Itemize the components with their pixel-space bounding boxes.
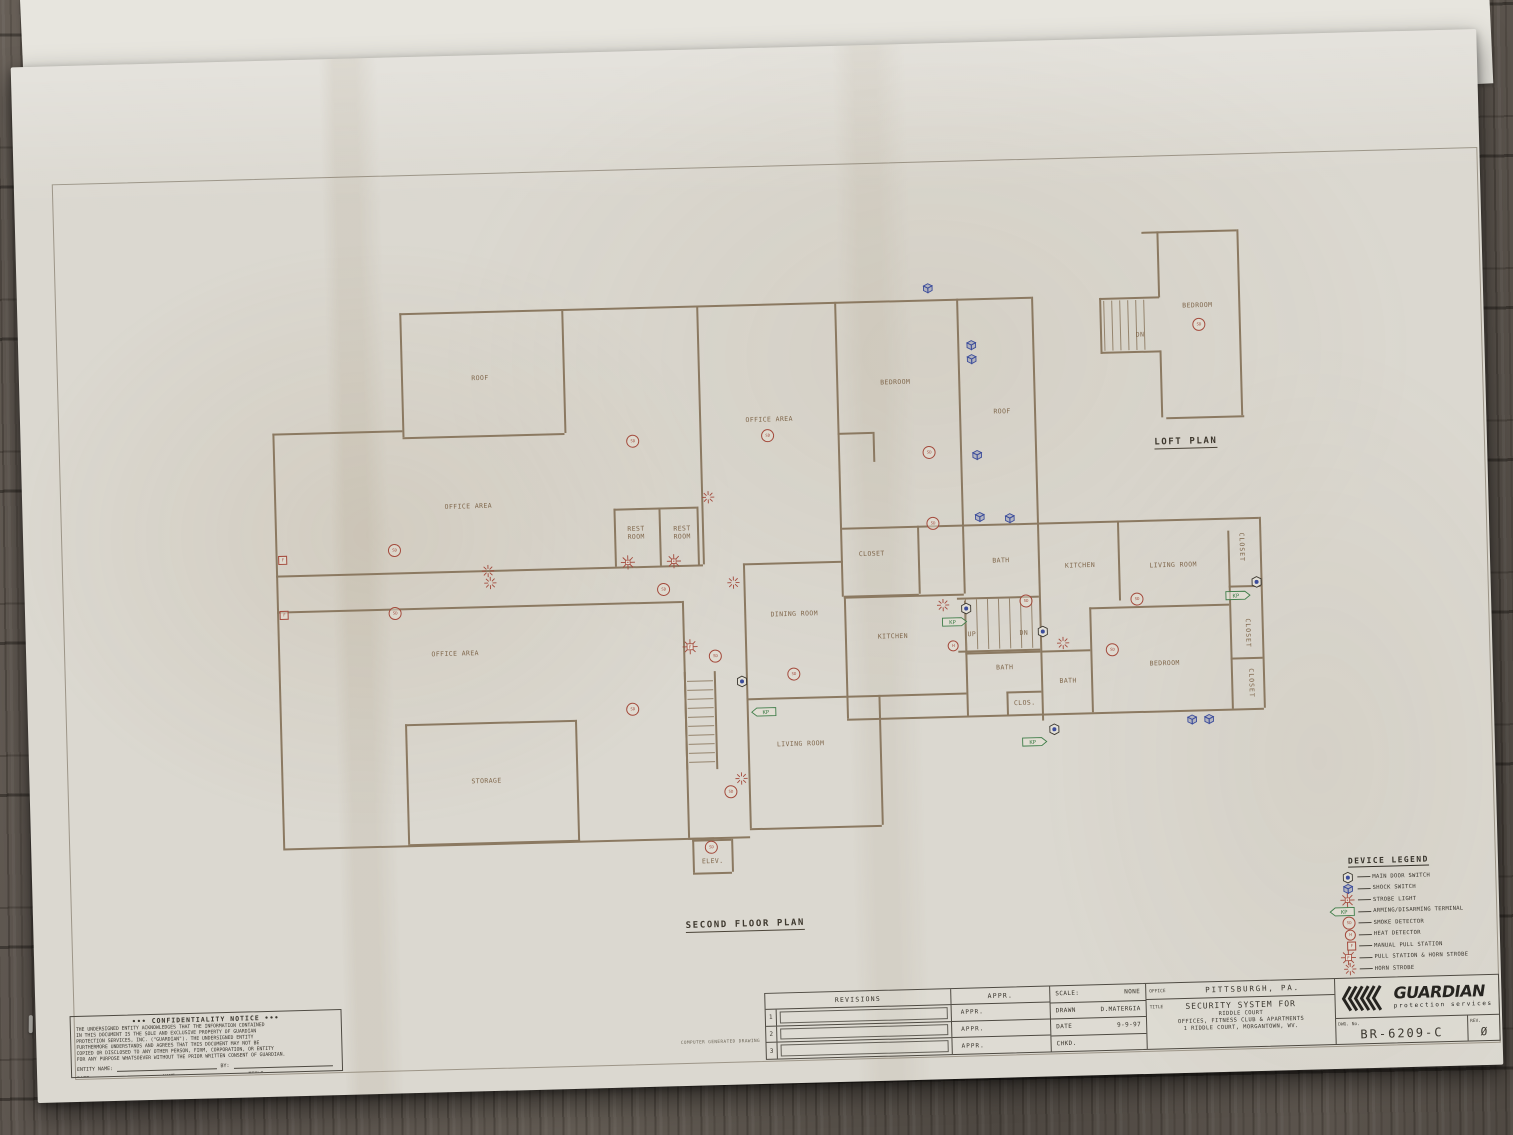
wall-segment bbox=[399, 313, 404, 437]
legend-leader-line bbox=[1359, 945, 1372, 946]
device-legend-title: DEVICE LEGEND bbox=[1348, 855, 1429, 868]
legend-leader-line bbox=[1358, 888, 1371, 889]
legend-item-label: SHOCK SWITCH bbox=[1373, 884, 1416, 891]
drawn-label: DRAWN bbox=[1056, 1007, 1076, 1015]
revision-number: 3 bbox=[766, 1043, 777, 1059]
pull-station-icon: F bbox=[280, 611, 289, 620]
room-label: REST ROOM bbox=[673, 524, 691, 541]
room-label: DN bbox=[1136, 331, 1145, 340]
shock-switch-icon bbox=[1186, 713, 1199, 726]
confidentiality-body: THE UNDERSIGNED ENTITY ACKNOWLEDGES THAT… bbox=[76, 1020, 337, 1063]
wall-segment bbox=[846, 693, 966, 698]
room-label: UP bbox=[967, 630, 976, 639]
wall-segment bbox=[405, 724, 410, 844]
legend-item-label: MAIN DOOR SWITCH bbox=[1372, 872, 1430, 880]
blueprint-paper: SECOND FLOOR PLAN LOFT PLAN COMPUTER GEN… bbox=[11, 29, 1504, 1103]
wall-segment bbox=[714, 671, 719, 769]
revision-number: 2 bbox=[766, 1026, 777, 1042]
loft-plan-title: LOFT PLAN bbox=[1154, 436, 1217, 450]
revision-cell: REV. Ø bbox=[1467, 1015, 1500, 1041]
dwg-label: DWG. No. bbox=[1338, 1021, 1360, 1027]
room-label: CLOS. bbox=[1014, 699, 1036, 708]
wall-segment bbox=[1089, 607, 1094, 712]
approval-column: APPR. APPR.APPR.APPR. bbox=[951, 986, 1052, 1054]
legend-item-label: MANUAL PULL STATION bbox=[1374, 941, 1443, 949]
stair-tread bbox=[1135, 300, 1137, 350]
horn-strobe-icon bbox=[1056, 636, 1069, 649]
shock-switch-icon bbox=[1202, 713, 1215, 726]
wall-segment bbox=[743, 561, 843, 566]
wall-segment bbox=[878, 695, 883, 825]
horn-strobe-icon bbox=[735, 772, 748, 785]
wall-segment bbox=[1006, 691, 1009, 714]
wall-segment bbox=[693, 872, 732, 875]
wall-segment bbox=[692, 840, 695, 873]
room-label: KITCHEN bbox=[1065, 561, 1095, 570]
stair-tread bbox=[976, 599, 978, 649]
legend-leader-line bbox=[1357, 876, 1370, 877]
smoke-detector-icon: SD bbox=[724, 785, 737, 798]
wall-segment bbox=[1166, 415, 1244, 419]
wall-segment bbox=[272, 430, 402, 435]
arming-terminal-icon: KP bbox=[751, 707, 777, 718]
legend-leader-line bbox=[1360, 968, 1373, 969]
svg-text:KP: KP bbox=[762, 710, 769, 716]
stair-tread bbox=[998, 599, 1000, 649]
horn-strobe-icon bbox=[936, 598, 949, 611]
wall-segment bbox=[682, 601, 690, 838]
svg-text:F: F bbox=[1347, 956, 1350, 962]
drawn-value: D.MATERGIA bbox=[1101, 1005, 1141, 1013]
wall-segment bbox=[272, 434, 285, 849]
smoke-detector-icon: SD bbox=[626, 703, 639, 716]
legend-leader-line bbox=[1359, 957, 1372, 958]
room-label: ROOF bbox=[471, 374, 488, 383]
guardian-chevrons-icon bbox=[1341, 984, 1390, 1011]
smoke-detector-icon: SD bbox=[1192, 318, 1205, 331]
room-label: STORAGE bbox=[471, 777, 501, 786]
guardian-logo: GUARDIAN protection services bbox=[1335, 975, 1499, 1019]
room-label: ELEV. bbox=[702, 857, 724, 866]
wall-segment bbox=[561, 309, 566, 433]
scale-column: SCALE: NONE DRAWN D.MATERGIA DATE 9-9-97… bbox=[1050, 984, 1148, 1051]
legend-leader-line bbox=[1358, 911, 1371, 912]
drawing-title-area: TITLE SECURITY SYSTEM FOR RIDDLE COURT O… bbox=[1146, 995, 1335, 1049]
wall-segment bbox=[1099, 296, 1159, 300]
wall-segment bbox=[658, 508, 662, 566]
svg-text:KP: KP bbox=[949, 620, 956, 626]
smoke-detector-icon: SD bbox=[709, 649, 722, 662]
wall-segment bbox=[1042, 708, 1264, 716]
by-blank bbox=[233, 1060, 333, 1069]
arming-terminal-icon: KP bbox=[1225, 590, 1251, 601]
wall-segment bbox=[917, 526, 921, 594]
revisions-table: REVISIONS 123 bbox=[765, 989, 953, 1059]
svg-text:KP: KP bbox=[1341, 910, 1348, 916]
wall-segment bbox=[403, 433, 565, 439]
wall-segment bbox=[743, 563, 752, 828]
approval-row: APPR. bbox=[952, 1036, 1050, 1054]
strobe-light-icon bbox=[666, 553, 681, 568]
shock-switch-icon bbox=[921, 282, 934, 295]
office-value: PITTSBURGH, PA. bbox=[1171, 982, 1334, 995]
wall-segment bbox=[746, 696, 846, 701]
smoke-detector-icon: SD bbox=[1019, 594, 1032, 607]
stair-tread bbox=[687, 680, 713, 682]
wall-segment bbox=[1159, 350, 1163, 417]
room-label: DINING ROOM bbox=[770, 609, 818, 619]
stair-tread bbox=[688, 707, 714, 709]
entity-name-label: ENTITY NAME: bbox=[77, 1066, 113, 1073]
smoke-detector-icon: SD bbox=[705, 841, 718, 854]
room-label: LIVING ROOM bbox=[777, 739, 825, 749]
wall-segment bbox=[847, 714, 1044, 721]
revision-blank bbox=[780, 1007, 948, 1023]
dwg-number-cell: DWG. No. BR-6209-C bbox=[1336, 1016, 1468, 1044]
stair-tread bbox=[689, 761, 715, 763]
wall-segment bbox=[873, 432, 876, 462]
room-label: DN bbox=[1019, 629, 1028, 638]
wall-segment bbox=[838, 432, 873, 435]
wall-segment bbox=[1031, 297, 1044, 721]
wall-segment bbox=[1227, 531, 1234, 709]
revision-number: 1 bbox=[766, 1010, 777, 1026]
stair-tread bbox=[689, 743, 715, 745]
shock-switch-icon bbox=[971, 449, 984, 462]
stair-tread bbox=[687, 698, 713, 700]
scale-value: NONE bbox=[1124, 988, 1140, 995]
smoke-detector-icon: SD bbox=[388, 607, 401, 620]
stair-tread bbox=[1143, 300, 1145, 350]
horn-strobe-icon bbox=[702, 491, 715, 504]
smoke-detector-icon: SD bbox=[657, 583, 670, 596]
date-label: DATE bbox=[1056, 1023, 1072, 1030]
checked-label: CHKD. bbox=[1057, 1040, 1077, 1048]
room-label: OFFICE AREA bbox=[445, 502, 493, 512]
stair-tread bbox=[1127, 300, 1129, 350]
strobe-light-icon bbox=[620, 555, 635, 570]
staple bbox=[29, 1015, 33, 1033]
room-label: BATH bbox=[996, 663, 1013, 672]
wall-segment bbox=[399, 297, 1031, 316]
legend-item-label: PULL STATION & HORN STROBE bbox=[1374, 952, 1468, 960]
revision-blank bbox=[780, 1024, 948, 1040]
room-label: OFFICE AREA bbox=[745, 415, 793, 425]
floor-plan: SECOND FLOOR PLAN LOFT PLAN COMPUTER GEN… bbox=[11, 29, 1504, 1103]
arming-terminal-icon: KP bbox=[941, 617, 967, 628]
photo-scene: SECOND FLOOR PLAN LOFT PLAN COMPUTER GEN… bbox=[0, 0, 1513, 1135]
rev-label: REV. bbox=[1470, 1018, 1481, 1024]
wall-segment bbox=[1089, 604, 1229, 610]
stair-tread bbox=[1103, 301, 1105, 351]
shock-switch-icon bbox=[973, 510, 986, 523]
approval-rows: APPR.APPR.APPR. bbox=[952, 1002, 1051, 1054]
revision-rows: 123 bbox=[766, 1005, 952, 1059]
room-label: LIVING ROOM bbox=[1149, 560, 1197, 570]
stair-tread bbox=[688, 725, 714, 727]
wall-segment bbox=[1117, 521, 1121, 601]
office-title-column: OFFICE PITTSBURGH, PA. TITLE SECURITY SY… bbox=[1146, 979, 1337, 1049]
legend-item-label: HEAT DETECTOR bbox=[1374, 930, 1421, 937]
wall-segment bbox=[1037, 517, 1259, 525]
by-label: BY: bbox=[220, 1063, 229, 1069]
smoke-detector-icon: SD bbox=[761, 429, 774, 442]
computer-generated-note: COMPUTER GENERATED DRAWING bbox=[681, 1039, 760, 1046]
wall-segment bbox=[834, 302, 844, 597]
smoke-detector-icon: SD bbox=[922, 446, 935, 459]
svg-text:KP: KP bbox=[1029, 740, 1036, 746]
room-label: CLOSET bbox=[859, 549, 885, 558]
wall-segment bbox=[696, 507, 700, 565]
room-label: REST ROOM bbox=[627, 524, 645, 541]
wall-segment bbox=[613, 507, 696, 511]
office-label: OFFICE bbox=[1149, 988, 1165, 994]
smoke-detector-icon: SD bbox=[388, 544, 401, 557]
title-label: TITLE bbox=[1150, 1004, 1164, 1010]
wall-segment bbox=[1259, 517, 1266, 708]
room-label: CLOSET bbox=[1243, 618, 1252, 648]
wall-segment bbox=[844, 597, 849, 719]
room-label: BATH bbox=[1059, 676, 1076, 685]
legend-item-label: ARMING/DISARMING TERMINAL bbox=[1373, 906, 1463, 914]
smoke-detector-icon: SD bbox=[1130, 592, 1143, 605]
stair-tread bbox=[688, 716, 714, 718]
stair-tread bbox=[1111, 301, 1113, 351]
shock-switch-icon bbox=[1003, 512, 1016, 525]
stair-tread bbox=[687, 689, 713, 691]
dwg-number: BR-6209-C bbox=[1360, 1025, 1443, 1041]
room-label: BATH bbox=[992, 556, 1009, 565]
wall-segment bbox=[1156, 231, 1160, 297]
revision-blank bbox=[781, 1040, 949, 1056]
room-label: BEDROOM bbox=[1149, 659, 1179, 668]
wall-segment bbox=[405, 720, 575, 726]
date-value: 9-9-97 bbox=[1117, 1021, 1141, 1029]
wall-segment bbox=[1101, 350, 1161, 354]
heat-detector-icon: H bbox=[1330, 929, 1356, 941]
main-door-switch-icon bbox=[960, 602, 973, 614]
pull-station-icon: F bbox=[278, 556, 287, 565]
room-label: KITCHEN bbox=[878, 632, 908, 641]
wall-segment bbox=[613, 509, 617, 567]
smoke-detector-icon: SD bbox=[1106, 643, 1119, 656]
wall-segment bbox=[1236, 229, 1243, 415]
wall-segment bbox=[1231, 657, 1263, 660]
wall-segment bbox=[1040, 649, 1090, 652]
horn-strobe-icon bbox=[484, 576, 497, 589]
brand-block: GUARDIAN protection services DWG. No. BR… bbox=[1335, 975, 1500, 1044]
wall-segment bbox=[731, 839, 734, 872]
main-door-switch-icon bbox=[1036, 625, 1049, 637]
stair-tread bbox=[689, 752, 715, 754]
shock-switch-icon bbox=[965, 353, 978, 366]
rev-number: Ø bbox=[1480, 1025, 1487, 1038]
room-label: BEDROOM bbox=[1182, 301, 1212, 310]
legend-item-label: STROBE LIGHT bbox=[1373, 896, 1416, 903]
legend-item-label: HORN STROBE bbox=[1375, 965, 1415, 972]
confidentiality-notice: ••• CONFIDENTIALITY NOTICE ••• THE UNDER… bbox=[70, 1009, 344, 1078]
stair-tread bbox=[688, 734, 714, 736]
shock-switch-icon bbox=[965, 339, 978, 352]
room-label: CLOSET bbox=[1247, 668, 1256, 698]
scale-label: SCALE: bbox=[1055, 990, 1079, 998]
smoke-detector-icon: SD bbox=[926, 517, 939, 530]
wall-segment bbox=[750, 825, 882, 830]
pull-station-horn-strobe-icon: F bbox=[682, 639, 698, 655]
legend-item-label: SMOKE DETECTOR bbox=[1373, 918, 1424, 925]
stair-tread bbox=[1119, 300, 1121, 350]
heat-detector-icon: H bbox=[948, 640, 959, 651]
smoke-detector-icon: SD bbox=[787, 667, 800, 680]
room-label: ROOF bbox=[993, 407, 1010, 416]
legend-leader-line bbox=[1358, 899, 1371, 900]
wall-segment bbox=[1006, 691, 1041, 694]
room-label: BEDROOM bbox=[880, 378, 910, 387]
arming-terminal-icon: KP bbox=[1022, 736, 1048, 747]
main-door-switch-icon bbox=[1250, 576, 1263, 588]
device-legend: DEVICE LEGEND MAIN DOOR SWITCHSHOCK SWIT… bbox=[1328, 845, 1499, 976]
stair-tread bbox=[1009, 598, 1011, 648]
dwg-row: DWG. No. BR-6209-C REV. Ø bbox=[1336, 1015, 1500, 1044]
smoke-detector-icon: SD bbox=[626, 435, 639, 448]
svg-text:KP: KP bbox=[1233, 594, 1240, 600]
second-floor-plan-title: SECOND FLOOR PLAN bbox=[686, 918, 806, 933]
room-label: OFFICE AREA bbox=[431, 649, 479, 659]
wall-segment bbox=[277, 601, 682, 614]
horn-strobe-icon bbox=[1331, 963, 1357, 977]
room-label: CLOSET bbox=[1237, 532, 1246, 562]
device-legend-rows: MAIN DOOR SWITCHSHOCK SWITCHSTROBE LIGHT… bbox=[1328, 868, 1499, 976]
brand-text: GUARDIAN protection services bbox=[1393, 982, 1493, 1009]
horn-strobe-icon bbox=[727, 576, 740, 589]
entity-name-blank bbox=[117, 1063, 217, 1072]
legend-leader-line bbox=[1359, 934, 1372, 935]
checked-row: CHKD. bbox=[1051, 1033, 1146, 1051]
brand-name: GUARDIAN bbox=[1392, 982, 1493, 1001]
wall-segment bbox=[575, 720, 580, 842]
svg-text:F: F bbox=[689, 645, 692, 651]
wall-segment bbox=[1099, 298, 1102, 354]
main-door-switch-icon bbox=[735, 675, 748, 687]
arming-terminal-icon: KP bbox=[1329, 907, 1355, 918]
main-door-switch-icon bbox=[1048, 723, 1061, 735]
stair-tread bbox=[987, 599, 989, 649]
legend-leader-line bbox=[1359, 922, 1372, 923]
